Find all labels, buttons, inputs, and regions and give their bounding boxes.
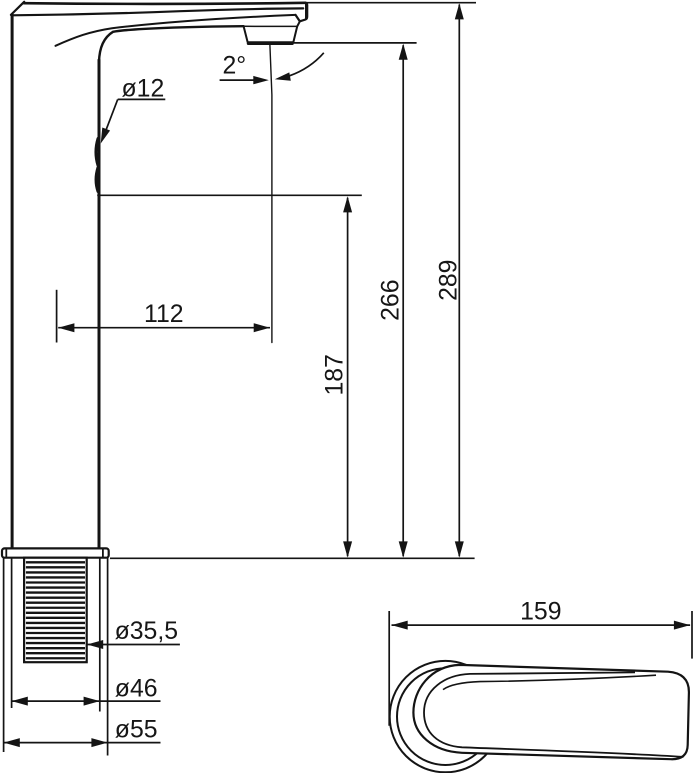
svg-text:159: 159 [520, 599, 561, 626]
svg-text:ø46: ø46 [115, 676, 158, 703]
svg-text:ø12: ø12 [122, 76, 165, 103]
svg-text:266: 266 [377, 280, 404, 321]
svg-text:187: 187 [322, 354, 349, 395]
svg-text:ø35,5: ø35,5 [115, 618, 178, 645]
svg-text:289: 289 [435, 260, 462, 301]
svg-text:ø55: ø55 [115, 717, 158, 744]
svg-text:2°: 2° [223, 53, 247, 80]
svg-text:112: 112 [144, 301, 184, 328]
